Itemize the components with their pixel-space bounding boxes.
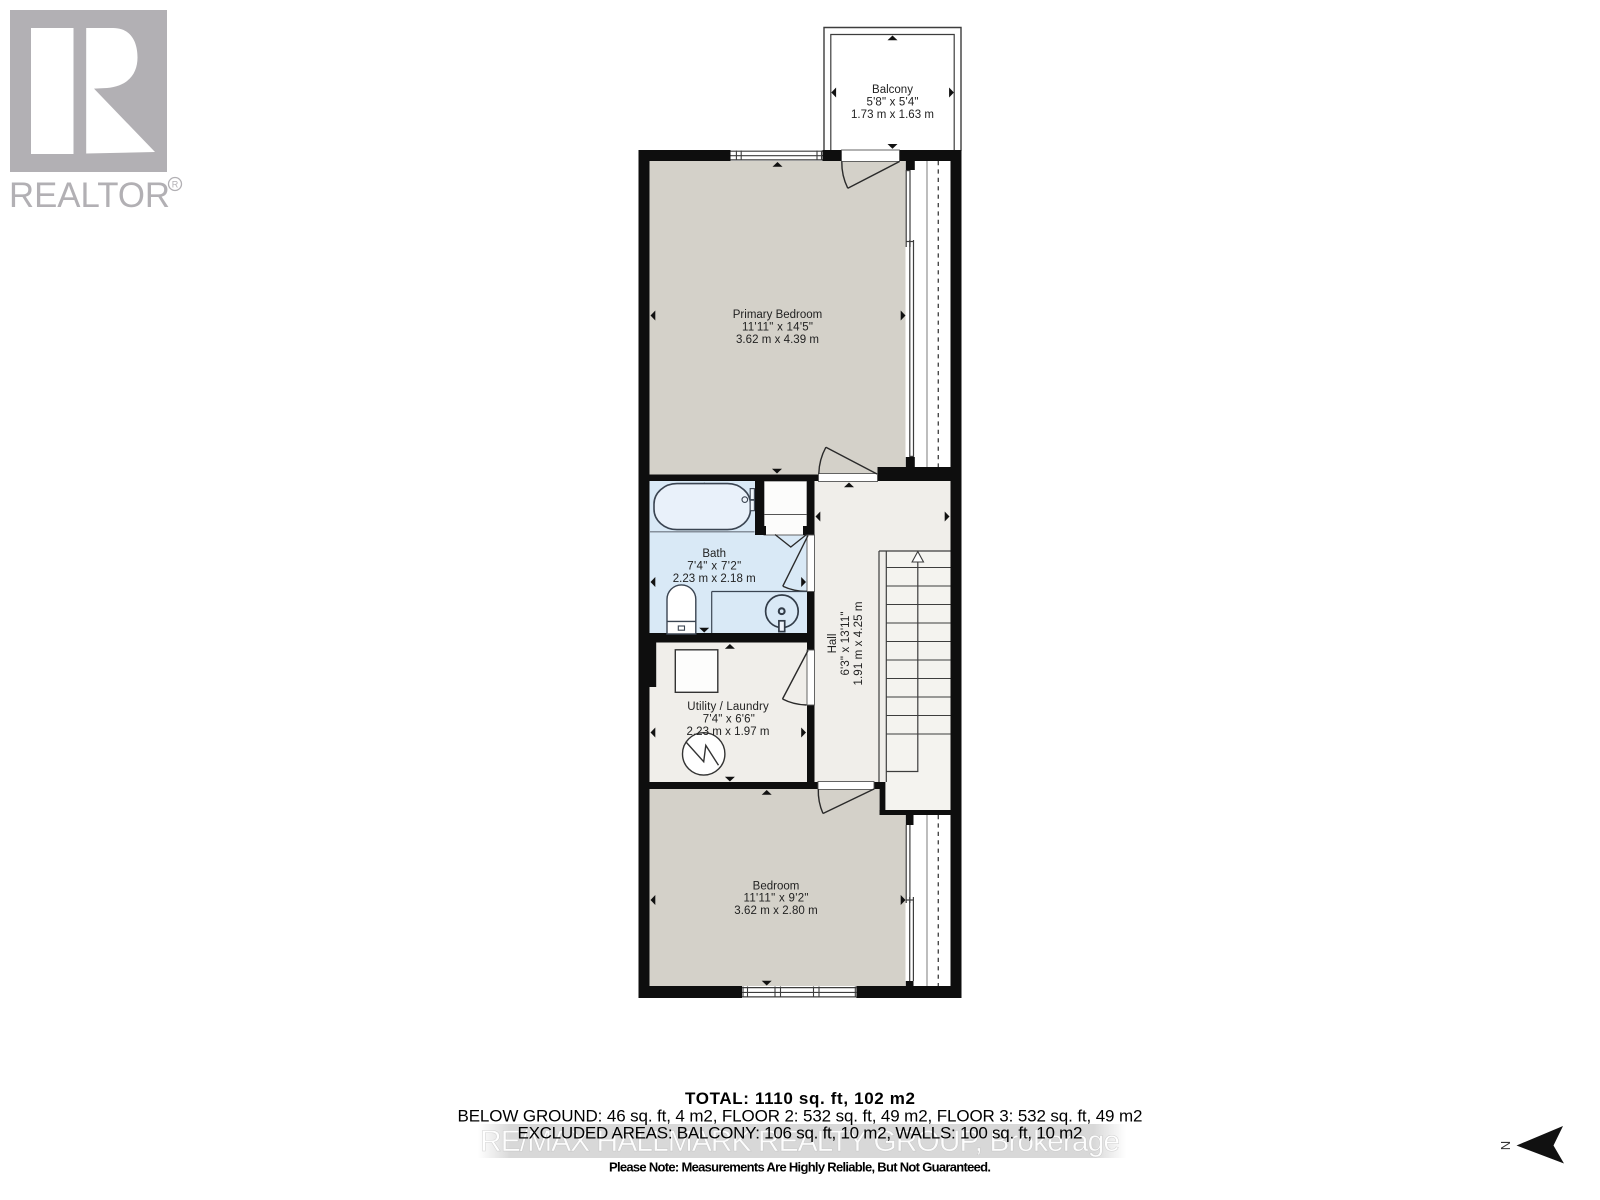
svg-text:7'4" x 6'6": 7'4" x 6'6" xyxy=(703,713,755,725)
svg-text:11'11" x 9'2": 11'11" x 9'2" xyxy=(744,893,809,905)
svg-text:6'3" x 13'11": 6'3" x 13'11" xyxy=(840,612,852,676)
svg-text:Bedroom: Bedroom xyxy=(753,880,800,892)
svg-text:11'11" x 14'5": 11'11" x 14'5" xyxy=(742,321,813,333)
svg-text:REALTOR: REALTOR xyxy=(9,176,170,215)
svg-text:3.62 m x 4.39 m: 3.62 m x 4.39 m xyxy=(736,334,819,346)
svg-text:5'8" x 5'4": 5'8" x 5'4" xyxy=(867,96,919,108)
svg-text:EXCLUDED AREAS: BALCONY: 106 s: EXCLUDED AREAS: BALCONY: 106 sq. ft, 10 … xyxy=(518,1124,1083,1143)
svg-text:2.23 m x 2.18 m: 2.23 m x 2.18 m xyxy=(673,573,756,585)
svg-text:Hall: Hall xyxy=(827,634,839,654)
svg-text:2.23 m x 1.97 m: 2.23 m x 1.97 m xyxy=(687,726,770,738)
svg-text:Please Note: Measurements Are: Please Note: Measurements Are Highly Rel… xyxy=(609,1160,991,1175)
svg-text:Balcony: Balcony xyxy=(872,84,913,96)
svg-text:TOTAL: 1110 sq. ft, 102 m2: TOTAL: 1110 sq. ft, 102 m2 xyxy=(685,1089,915,1108)
svg-text:1.91 m x 4.25 m: 1.91 m x 4.25 m xyxy=(853,602,865,686)
svg-text:1.73 m x 1.63 m: 1.73 m x 1.63 m xyxy=(851,109,934,121)
svg-text:Bath: Bath xyxy=(702,548,726,560)
svg-text:R: R xyxy=(172,180,179,190)
svg-text:Primary Bedroom: Primary Bedroom xyxy=(733,309,822,321)
svg-text:Utility / Laundry: Utility / Laundry xyxy=(687,701,769,713)
svg-text:N: N xyxy=(1498,1141,1513,1150)
svg-text:3.62 m x 2.80 m: 3.62 m x 2.80 m xyxy=(734,905,818,917)
svg-text:7'4" x 7'2": 7'4" x 7'2" xyxy=(687,560,741,572)
